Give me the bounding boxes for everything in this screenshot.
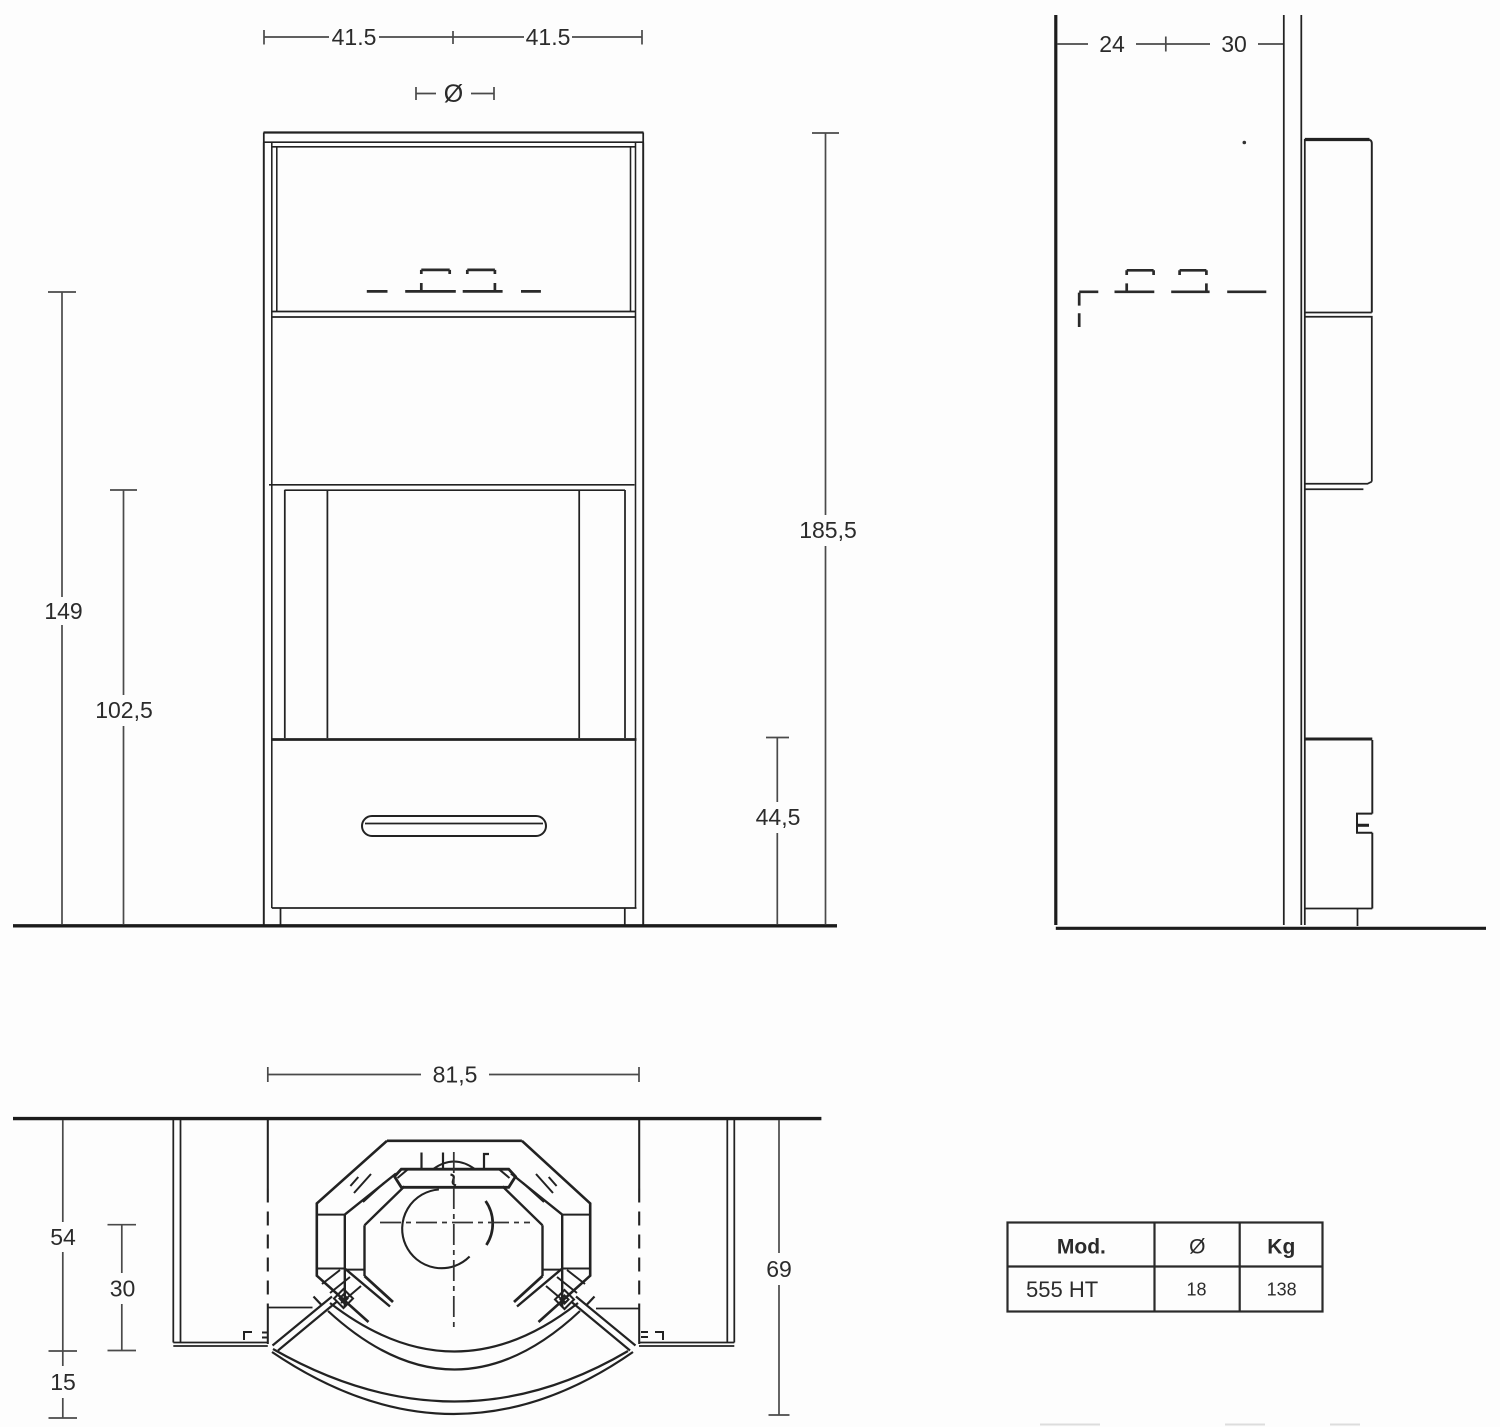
svg-text:Kg: Kg [1267, 1236, 1295, 1259]
svg-text:81,5: 81,5 [433, 1062, 478, 1088]
svg-text:41.5: 41.5 [332, 24, 377, 50]
svg-text:24: 24 [1099, 31, 1125, 57]
svg-text:102,5: 102,5 [95, 697, 153, 723]
svg-text:555 HT: 555 HT [1026, 1277, 1098, 1302]
svg-text:30: 30 [110, 1276, 136, 1302]
svg-text:18: 18 [1186, 1280, 1206, 1300]
svg-text:Ø: Ø [444, 80, 463, 108]
svg-text:69: 69 [766, 1256, 792, 1282]
svg-text:185,5: 185,5 [799, 517, 857, 543]
svg-text:Mod.: Mod. [1057, 1236, 1106, 1259]
svg-text:138: 138 [1267, 1280, 1297, 1300]
svg-text:149: 149 [44, 598, 82, 624]
svg-text:30: 30 [1221, 31, 1247, 57]
svg-text:Ø: Ø [1189, 1236, 1205, 1259]
svg-text:44,5: 44,5 [756, 804, 801, 830]
svg-text:41.5: 41.5 [526, 24, 571, 50]
svg-text:54: 54 [50, 1224, 76, 1250]
svg-text:15: 15 [50, 1369, 76, 1395]
